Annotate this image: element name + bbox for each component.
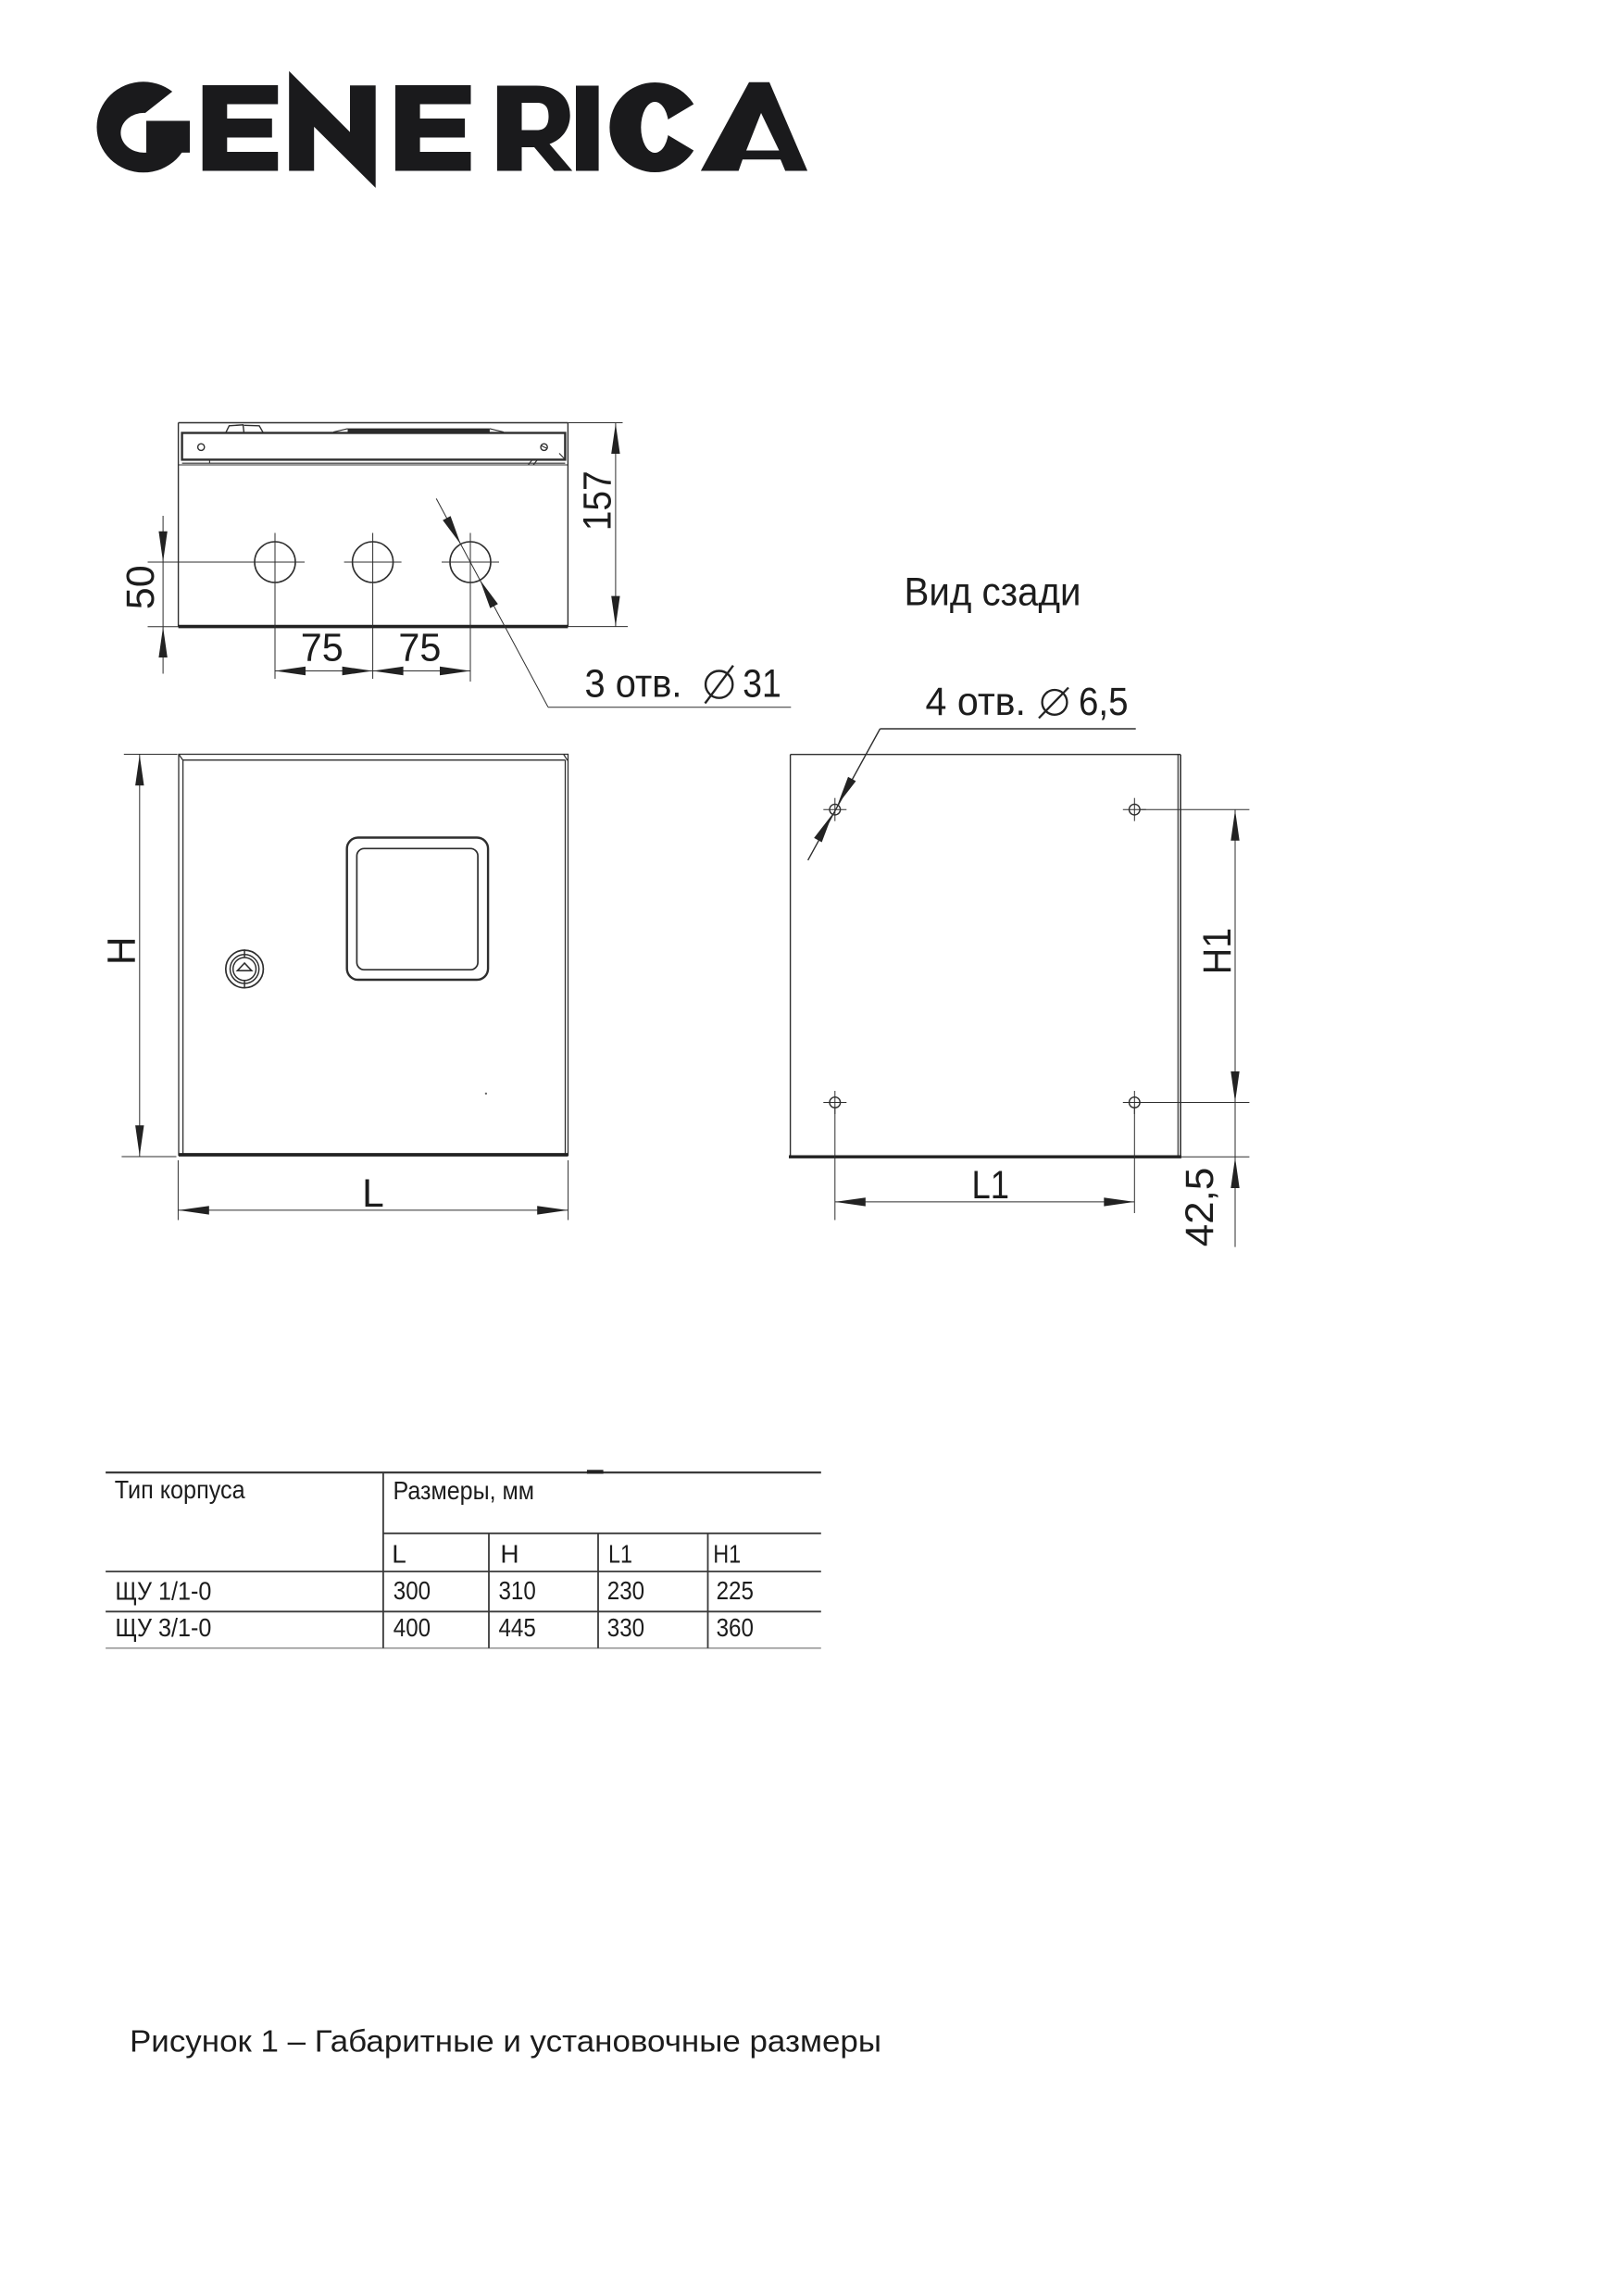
svg-text:360: 360 (717, 1613, 754, 1642)
svg-text:L: L (362, 1172, 384, 1216)
svg-text:157: 157 (577, 470, 620, 531)
svg-text:330: 330 (607, 1613, 644, 1642)
svg-text:ЩУ 3/1-0: ЩУ 3/1-0 (115, 1613, 211, 1642)
svg-text:3 отв.: 3 отв. (585, 663, 682, 707)
svg-text:42,5: 42,5 (1179, 1168, 1222, 1247)
svg-text:445: 445 (499, 1613, 536, 1642)
svg-text:310: 310 (499, 1576, 536, 1605)
svg-text:Тип корпуса: Тип корпуса (115, 1475, 245, 1504)
svg-text:230: 230 (607, 1576, 644, 1605)
svg-text:50: 50 (119, 565, 163, 609)
svg-text:Размеры, мм: Размеры, мм (394, 1476, 535, 1505)
svg-text:225: 225 (717, 1576, 754, 1605)
svg-text:ЩУ 1/1-0: ЩУ 1/1-0 (115, 1576, 211, 1605)
svg-text:75: 75 (398, 627, 441, 670)
svg-text:300: 300 (394, 1576, 431, 1605)
svg-text:H: H (500, 1540, 518, 1569)
svg-text:Рисунок 1 – Габаритные и устан: Рисунок 1 – Габаритные и установочные ра… (130, 2025, 881, 2059)
svg-text:6,5: 6,5 (1079, 681, 1129, 724)
svg-text:Вид сзади: Вид сзади (905, 571, 1081, 615)
svg-text:75: 75 (301, 627, 344, 670)
svg-text:H: H (100, 936, 144, 965)
svg-text:31: 31 (743, 663, 781, 707)
svg-text:H1: H1 (713, 1540, 741, 1569)
svg-text:L: L (392, 1540, 406, 1569)
svg-text:L1: L1 (608, 1540, 632, 1569)
svg-text:4 отв.: 4 отв. (926, 681, 1027, 724)
svg-text:L1: L1 (972, 1164, 1010, 1208)
svg-text:400: 400 (394, 1613, 431, 1642)
svg-text:H1: H1 (1196, 928, 1240, 975)
